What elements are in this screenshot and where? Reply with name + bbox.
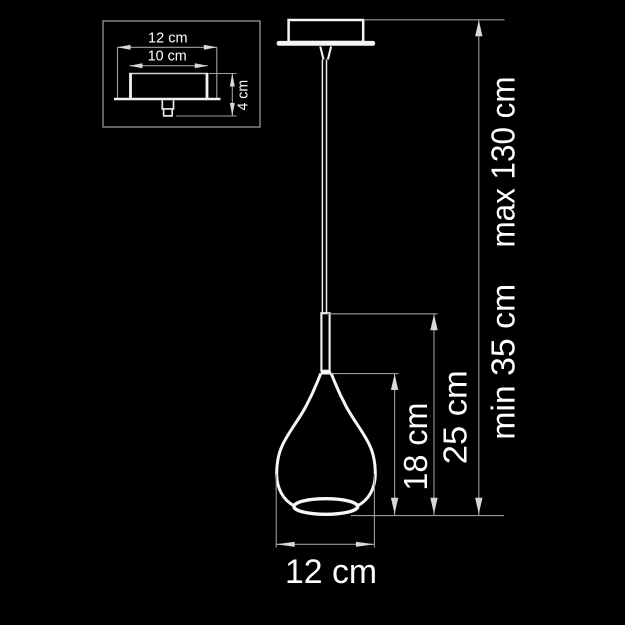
svg-text:max 130 cm: max 130 cm <box>485 77 522 248</box>
svg-text:25 cm: 25 cm <box>437 370 474 464</box>
svg-text:min 35 cm: min 35 cm <box>485 284 522 440</box>
svg-text:10 cm: 10 cm <box>148 48 187 65</box>
svg-text:12 cm: 12 cm <box>285 553 377 591</box>
svg-text:4 cm: 4 cm <box>235 80 252 111</box>
svg-text:18 cm: 18 cm <box>397 403 434 491</box>
svg-text:12 cm: 12 cm <box>148 30 188 47</box>
